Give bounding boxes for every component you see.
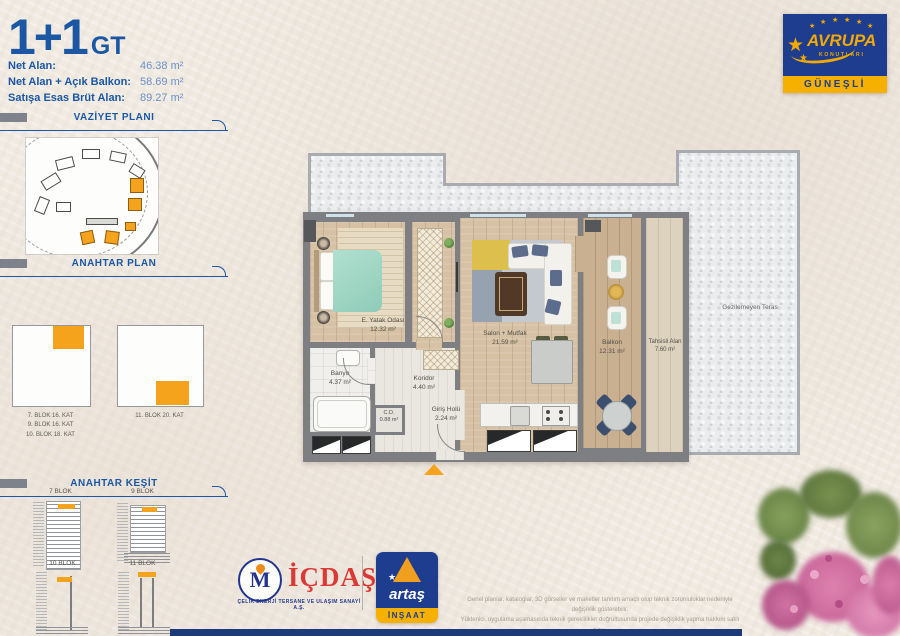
window [326,214,354,217]
site-building [86,218,118,225]
flower-cluster [762,580,810,630]
stat-value: 46.38 m² [140,58,183,74]
section-header-key-plan: ANAHTAR PLAN [0,258,228,277]
key-section-floor-list [36,572,47,630]
star-icon: ★ [856,19,862,26]
key-section-label-7: 7 BLOK [38,488,83,495]
flower-decoration [730,462,900,636]
corridor-wardrobe [423,350,459,370]
window [470,214,526,217]
key-section-floor-marker [57,577,72,582]
cabinet-symbol [342,436,371,454]
site-highlight-block-10 [80,230,95,245]
living-label: Salon + Mutfak 21.59 m² [455,330,555,348]
stat-label: Net Alan: [8,58,140,74]
room-allocated [646,218,683,452]
plant [444,238,454,248]
room-name: Tahsisli Alan [640,338,690,346]
room-area: 7.60 m² [640,346,690,354]
room-name: Balkon [583,339,641,348]
brand-location-badge: GÜNEŞLİ [783,76,887,93]
room-name: C.D. [373,410,405,417]
site-highlight-block-11 [104,230,120,245]
brand-subname: KONUTLARI [819,52,865,58]
flower-cluster [872,556,900,614]
flower-dot [860,575,869,584]
artas-a-icon [393,557,421,582]
unit-type-suffix: GT [91,32,126,60]
key-plan-caption-left: 7. BLOK 16. KAT 9. BLOK 16. KAT 10. BLOK… [8,412,93,440]
corridor-label: Koridor 4.40 m² [384,375,464,393]
caption-line: 9. BLOK 16. KAT [8,421,93,430]
stove-burner [546,417,550,421]
icdas-logo-mark: M [238,558,282,602]
room-area: 0.88 m² [373,417,405,424]
flower-dot [835,600,843,608]
icdas-logo-subtitle: ÇELİK ENERJİ TERSANE VE ULAŞIM SANAYİ A.… [232,599,366,611]
kitchen-cabinet-symbol [487,430,531,452]
bed-duvet [333,250,382,312]
room-name: Gezilemeyen Teras [700,304,800,313]
kitchen-stove [542,406,570,426]
key-section-label-9: 9 BLOK [120,488,165,495]
artas-logo: ★ artaş İNŞAAT [376,552,438,623]
caption-line: 7. BLOK 16. KAT [8,412,93,421]
section-header-key-section: ANAHTAR KEŞİT [0,478,228,497]
key-section-base [118,626,170,634]
site-building [82,149,100,159]
area-stats: Net Alan: 46.38 m² Net Alan + Açık Balko… [8,58,223,106]
stat-row: Net Alan: 46.38 m² [8,58,223,74]
flower-dot [790,605,798,613]
coffee-table-inlay [499,277,523,311]
stove-burner [559,417,563,421]
terrace-wall [443,153,446,186]
site-highlight-block-7 [130,178,144,193]
artas-logo-panel: ★ artaş [376,552,438,608]
stat-value: 89.27 m² [140,90,183,106]
bathtub [313,396,371,432]
caption-line: 10. BLOK 18. KAT [8,431,93,440]
key-section-floor-marker [58,504,75,509]
coffee-table [495,272,527,316]
room-area: 4.40 m² [384,384,464,393]
foliage [846,492,900,558]
terrace-wall [446,183,679,186]
key-section-label-11: 11 BLOK [120,560,165,567]
key-plan-right [117,325,204,407]
page-title: 1+1GT [8,12,126,62]
key-section-elevation-11 [140,578,142,628]
icdas-logo-name: İÇDAŞ [288,562,377,593]
key-plan-unit-highlight [156,381,189,405]
key-section-base [36,626,88,634]
key-section-floor-marker [142,507,157,512]
stat-value: 58.69 m² [140,74,183,90]
artas-name: artaş [376,586,438,603]
disclaimer-line: Genel planlar, kataloglar, 3D görseller … [455,595,745,615]
nightstand-lamp [317,311,330,324]
artas-band: İNŞAAT [376,608,438,623]
stat-row: Net Alan + Açık Balkon: 58.69 m² [8,74,223,90]
sofa-cushion [511,245,528,258]
balcony-side-table [608,284,624,300]
logo-separator [362,556,363,610]
site-highlight-block-8 [125,222,136,231]
key-section-floor-list [118,572,129,630]
kitchen-sink [510,406,530,426]
room-area: 21.59 m² [455,339,555,348]
terrace-wall [676,150,800,153]
star-icon: ★ [388,572,396,583]
section-header-site-plan: VAZİYET PLANI [0,112,228,131]
terrace-wall [689,452,800,455]
avrupa-konutlari-logo: ★ ★ ★ ★ ★ ★ ★ ★ AVRUPA KONUTLARI GÜNEŞLİ [783,14,887,93]
star-icon: ★ [820,19,826,26]
armchair-cushion [611,260,621,272]
wall-tv [456,262,458,292]
sofa-cushion [531,244,548,257]
closet-label: C.D. 0.88 m² [373,410,405,425]
key-plan-left [12,325,91,407]
sofa-cushion [550,270,562,286]
terrace-wall [308,153,446,156]
star-icon: ★ [832,17,838,24]
key-section-label-10: 10 BLOK [40,560,85,567]
balcony-door-opening [575,236,585,272]
site-plan-thumbnail [26,138,158,254]
entry-label: Giriş Holü 2.24 m² [408,406,484,424]
key-section-elevation-10 [70,576,72,630]
bed-headboard [314,250,319,312]
armchair-cushion [611,312,621,324]
plant [444,318,454,328]
floor-plan: Gezilemeyen Teras E. Yatak Odası 12.32 [296,140,812,480]
foliage [760,540,796,580]
stat-label: Net Alan + Açık Balkon: [8,74,140,90]
site-highlight-block-9 [128,198,142,211]
nightstand-lamp [317,237,330,250]
balcony-armchair [607,306,627,330]
unit-type: 1+1 [8,9,87,65]
key-plan-unit-highlight [53,326,84,349]
star-icon: ★ [844,17,850,24]
flower-dot [825,555,832,562]
room-name: Giriş Holü [408,406,484,415]
terrace-wall [797,150,800,455]
entrance-arrow-icon [424,464,444,475]
room-area: 2.24 m² [408,415,484,424]
shaft-block [304,220,316,242]
bathtub-inner [317,400,367,428]
bottom-accent-bar [170,629,742,636]
room-area: 12.31 m² [583,348,641,357]
terrace-label: Gezilemeyen Teras [700,304,800,313]
window [588,214,632,217]
kitchen-cabinet-symbol [533,430,577,452]
allocated-label: Tahsisli Alan 7.60 m² [640,338,690,354]
key-plan-caption-right: 11. BLOK 20. KAT [117,412,202,421]
key-section-floor-list [33,500,44,566]
ac-unit [585,220,601,232]
room-name: Koridor [384,375,464,384]
flower-dot [810,570,819,579]
star-icon: ★ [809,23,815,30]
key-section-elevation-11 [152,578,154,628]
key-section-elevation-9 [130,505,166,553]
brochure-page: 1+1GT Net Alan: 46.38 m² Net Alan + Açık… [0,0,900,636]
site-building [56,202,71,212]
stat-label: Satışa Esas Brüt Alan: [8,90,140,106]
terrace-wall [676,150,679,186]
balcony-label: Balkon 12.31 m² [583,339,641,357]
balcony-table [602,401,632,431]
room-name: Salon + Mutfak [455,330,555,339]
living-rug-accent [472,240,510,270]
stove-burner [559,410,563,414]
balcony-armchair [607,255,627,279]
stat-row: Satışa Esas Brüt Alan: 89.27 m² [8,90,223,106]
cabinet-symbol [312,436,341,454]
key-section-floor-marker [138,572,156,577]
brand-logo-panel: ★ ★ ★ ★ ★ ★ ★ ★ AVRUPA KONUTLARI [783,14,887,76]
star-icon: ★ [867,23,873,30]
brand-name: AVRUPA [807,31,876,51]
stove-burner [546,410,550,414]
